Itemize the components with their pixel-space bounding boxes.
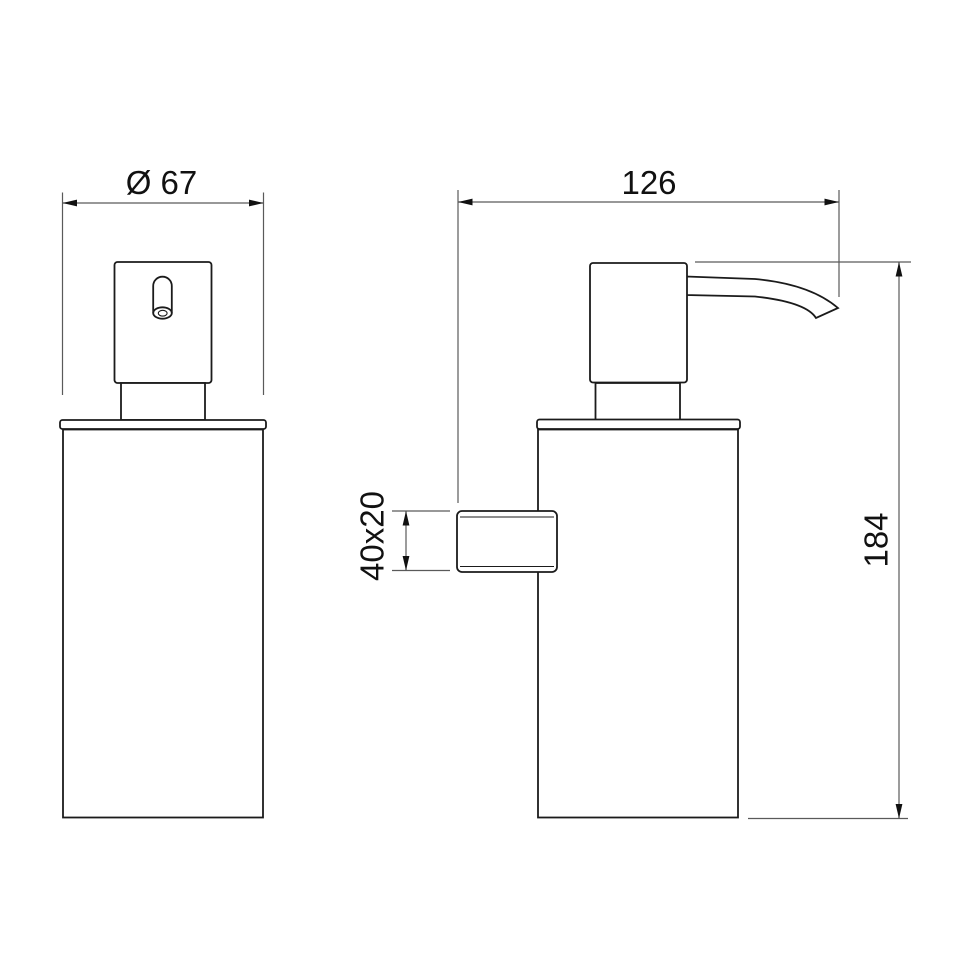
side-view: 126 184 40x20 (354, 164, 912, 819)
height-label: 184 (858, 512, 895, 567)
bottle-body-side (538, 430, 738, 818)
front-view: Ø 67 (60, 164, 266, 818)
depth-label: 126 (621, 164, 676, 201)
arrowhead-left (458, 199, 473, 206)
arrowhead-left (63, 200, 78, 207)
arrowhead-top (896, 262, 903, 277)
spout (686, 277, 838, 319)
arrowhead-bottom (896, 804, 903, 819)
arrowhead-bottom (403, 556, 410, 571)
pump-collar-front (121, 383, 205, 420)
technical-drawing-canvas: Ø 67 126 184 (0, 0, 970, 970)
arrowhead-right (249, 200, 264, 207)
bracket-label: 40x20 (354, 491, 391, 581)
diameter-label: Ø 67 (126, 164, 198, 201)
bottle-body-front (63, 430, 263, 818)
wall-bracket (457, 511, 557, 572)
lid-front (60, 420, 266, 429)
pump-head-front (115, 262, 212, 383)
pump-head-side (590, 263, 687, 383)
drawing-page: Ø 67 126 184 (0, 0, 970, 970)
pump-collar-side (596, 383, 681, 420)
arrowhead-right (825, 199, 840, 206)
lid-side (537, 420, 740, 430)
arrowhead-top (403, 511, 410, 526)
dimension-bracket: 40x20 (354, 491, 451, 581)
